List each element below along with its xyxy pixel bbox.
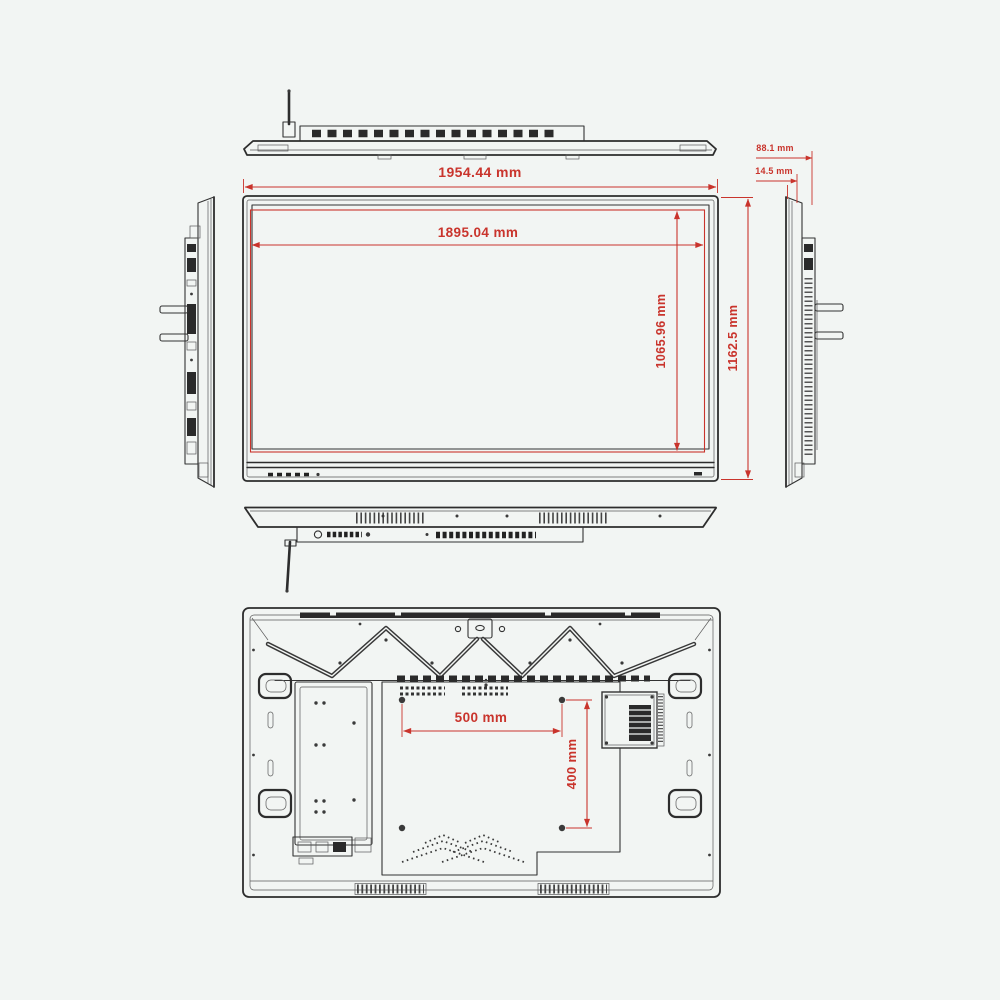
dimension-overall-height: 1162.5 mm [721, 198, 753, 480]
speaker-grille [402, 679, 524, 862]
wall-hook-upper-left [160, 306, 188, 313]
dimension-overall-width: 1954.44 mm [244, 164, 718, 193]
vesa-vertical-label: 400 mm [564, 739, 579, 790]
active-width-label: 1895.04 mm [438, 225, 519, 240]
overall-height-label: 1162.5 mm [726, 305, 740, 372]
wall-hook-lower-left [160, 334, 188, 341]
depth-front-label: 14.5 mm [755, 166, 792, 176]
wall-hook-upper-right [815, 304, 843, 311]
handle-bottom-right [669, 790, 701, 817]
vesa-hole-top-right [559, 697, 565, 703]
rear-connector-box [293, 837, 371, 864]
mount-screw-right [499, 626, 504, 631]
wall-mount-truss [268, 628, 694, 681]
top-view [244, 89, 716, 159]
dimension-active-width: 1895.04 mm [252, 225, 703, 245]
front-view: 1895.04 mm 1065.96 mm [243, 196, 718, 481]
vesa-hole-top-left [399, 697, 405, 703]
rear-port-cluster-right [462, 688, 508, 694]
page-background: 1954.44 mm 1895.04 mm 1065.96 mm 1162.5 … [0, 0, 1000, 1000]
vesa-hole-bottom-right [559, 825, 565, 831]
vesa-horizontal-label: 500 mm [455, 710, 508, 725]
technical-drawing: 1954.44 mm 1895.04 mm 1065.96 mm 1162.5 … [0, 0, 1000, 1000]
screen-active-area [251, 210, 705, 452]
rear-port-cluster-left [400, 688, 445, 694]
rear-top-rail [300, 613, 660, 619]
handle-top-left [259, 674, 291, 698]
antenna-bottom [285, 540, 296, 593]
depth-overall-label: 88.1 mm [756, 143, 793, 153]
top-vent-bar [300, 126, 584, 141]
ops-module [602, 692, 664, 748]
left-side-view [160, 197, 214, 487]
handle-top-right [669, 674, 701, 698]
left-module-compartment [295, 682, 372, 845]
vesa-mount-area [382, 679, 620, 875]
active-height-label: 1065.96 mm [654, 294, 668, 369]
dimension-vesa-horizontal: 500 mm [402, 704, 562, 737]
dimension-depth-front: 14.5 mm [755, 166, 797, 203]
vesa-hole-bottom-left [399, 825, 405, 831]
front-bezel-inner [252, 205, 709, 449]
mount-screw-left [455, 626, 460, 631]
right-side-view [786, 197, 843, 487]
handle-bottom-left [259, 790, 291, 817]
wall-hook-lower-right [815, 332, 843, 339]
bottom-power-socket [314, 531, 321, 538]
top-chassis [244, 141, 716, 159]
antenna [283, 89, 295, 137]
dimension-vesa-vertical: 400 mm [564, 700, 592, 828]
bottom-view [245, 508, 716, 593]
rear-view: 500 mm 400 mm [243, 608, 720, 897]
rear-bottom-vents [250, 881, 713, 895]
overall-width-label: 1954.44 mm [438, 164, 521, 180]
rear-outer-frame [243, 608, 720, 897]
front-logo-mark [694, 472, 702, 476]
center-mount-bracket [455, 619, 504, 638]
dimension-active-height: 1065.96 mm [654, 212, 677, 451]
